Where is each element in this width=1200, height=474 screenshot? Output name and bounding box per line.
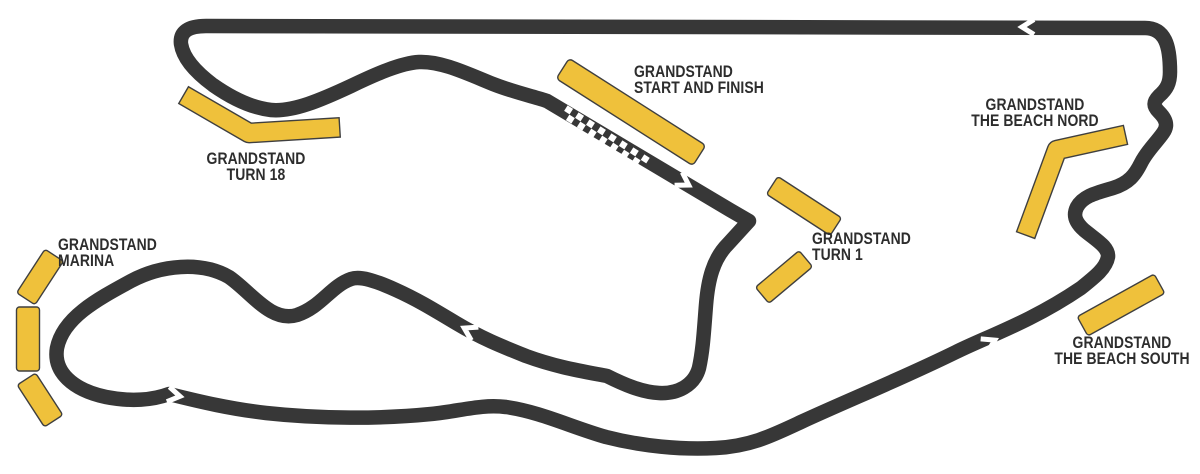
grandstand-label-turn-18: GRANDSTAND TURN 18 <box>199 151 314 183</box>
grandstand-label-the-beach-nord: GRANDSTAND THE BEACH NORD <box>965 97 1104 129</box>
grandstand-marker-marina-middle <box>17 307 40 371</box>
grandstand-label-start-finish: GRANDSTAND START AND FINISH <box>634 64 764 96</box>
grandstand-label-the-beach-south: GRANDSTAND THE BEACH SOUTH <box>1052 335 1191 367</box>
grandstand-marker-turn-1-lower <box>755 251 812 304</box>
label-line: THE BEACH NORD <box>965 113 1104 129</box>
grandstand-marker-marina-lower <box>17 373 63 427</box>
circuit-svg <box>0 0 1200 474</box>
label-line: THE BEACH SOUTH <box>1052 351 1191 367</box>
label-line: TURN 1 <box>812 247 911 263</box>
label-line: START AND FINISH <box>634 80 764 96</box>
grandstand-label-marina: GRANDSTAND MARINA <box>58 237 157 269</box>
label-line: TURN 18 <box>199 167 314 183</box>
label-line: MARINA <box>58 253 157 269</box>
grandstand-marker-marina-upper <box>17 249 64 305</box>
grandstand-label-turn-1: GRANDSTAND TURN 1 <box>812 231 911 263</box>
grandstand-marker-turn-1-upper <box>766 176 841 235</box>
track-map: GRANDSTAND TURN 18 GRANDSTAND START AND … <box>0 0 1200 474</box>
